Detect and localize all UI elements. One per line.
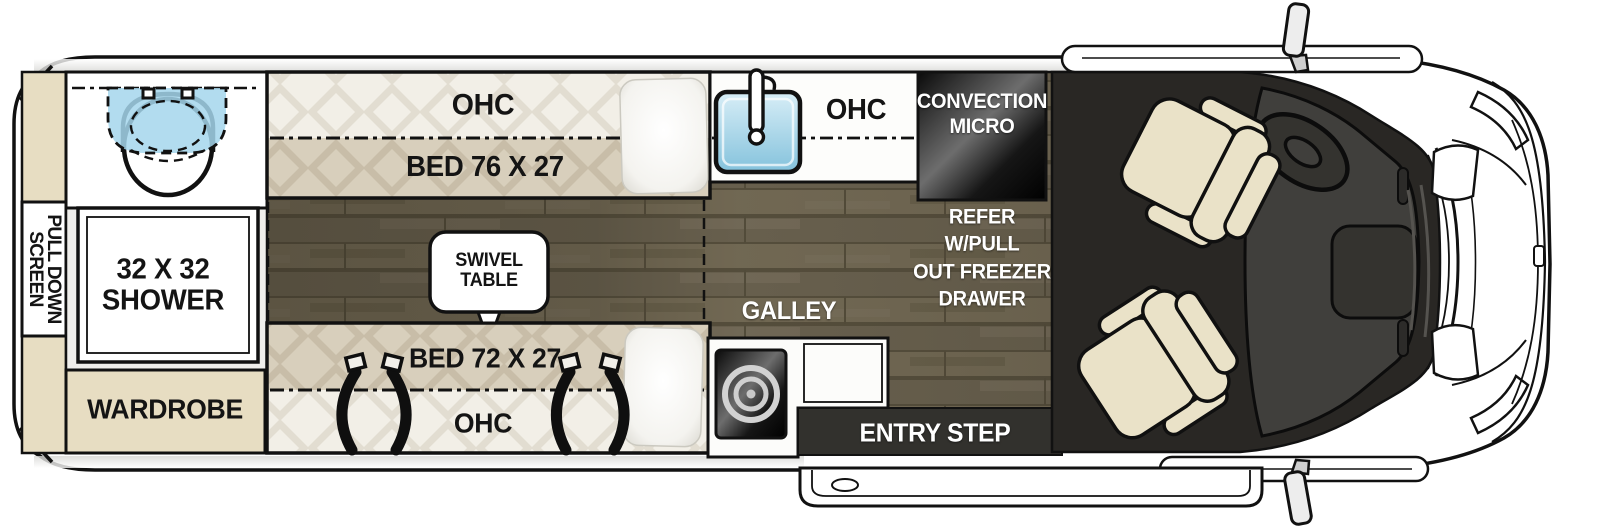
- ohc-front-label: OHC: [452, 89, 514, 121]
- pull-down-screen-line1: PULL DOWN: [44, 199, 62, 339]
- wardrobe-label: WARDROBE: [87, 394, 243, 423]
- sink-counter: [710, 70, 918, 182]
- hood-vent-icon: [1432, 325, 1478, 379]
- convection-micro-label: CONVECTION MICRO: [917, 89, 1047, 139]
- galley-label: GALLEY: [742, 298, 837, 324]
- pillow-icon: [622, 327, 703, 447]
- rv-floorplan: PULL DOWN SCREEN 32 X 32 SHOWER WARDROBE…: [0, 0, 1600, 529]
- refrigerator-label: REFER W/PULL OUT FREEZER DRAWER: [913, 203, 1051, 312]
- bed-front-label: BED 76 X 27: [406, 152, 564, 182]
- toilet-swivel-zone: [108, 88, 226, 153]
- ohc-galley-label: OHC: [826, 95, 886, 125]
- cooktop-burner-icon: [716, 350, 786, 438]
- shower-label: 32 X 32 SHOWER: [102, 255, 224, 318]
- exterior-step: [800, 468, 1262, 506]
- entry-step-label: ENTRY STEP: [860, 419, 1011, 446]
- swivel-table-label: SWIVEL TABLE: [455, 251, 522, 291]
- pull-down-screen-line2: SCREEN: [26, 199, 44, 339]
- pull-down-screen-label: PULL DOWN SCREEN: [22, 202, 66, 336]
- floorplan-drawing: [0, 0, 1600, 529]
- ohc-rear-label: OHC: [454, 408, 512, 437]
- center-console: [1332, 226, 1416, 318]
- bed-rear-label: BED 72 X 27: [409, 343, 561, 372]
- hood-vent-icon: [1432, 145, 1478, 199]
- pillow-icon: [620, 78, 709, 194]
